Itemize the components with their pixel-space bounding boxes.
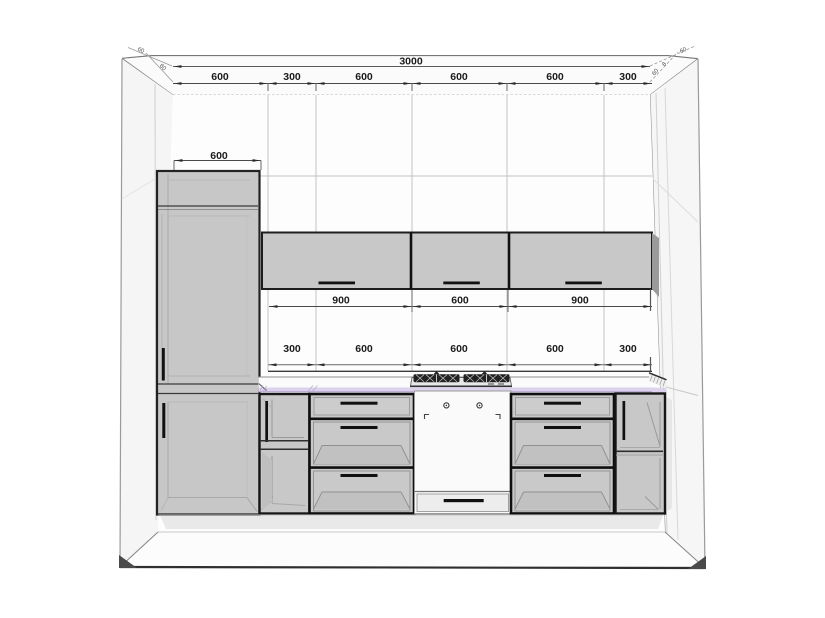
svg-text:900: 900 [332, 295, 350, 307]
svg-text:600: 600 [211, 71, 229, 83]
svg-text:600: 600 [355, 343, 373, 355]
svg-text:600: 600 [546, 343, 564, 355]
svg-text:600: 600 [450, 71, 468, 83]
svg-text:600: 600 [450, 343, 468, 355]
svg-text:600: 600 [355, 71, 373, 83]
svg-text:900: 900 [571, 295, 589, 307]
svg-text:300: 300 [619, 343, 637, 355]
svg-text:300: 300 [283, 343, 301, 355]
svg-text:300: 300 [619, 71, 637, 83]
svg-text:600: 600 [546, 71, 564, 83]
svg-text:600: 600 [451, 295, 469, 307]
svg-text:300: 300 [283, 71, 301, 83]
svg-text:3000: 3000 [399, 56, 423, 68]
svg-text:600: 600 [210, 150, 228, 162]
